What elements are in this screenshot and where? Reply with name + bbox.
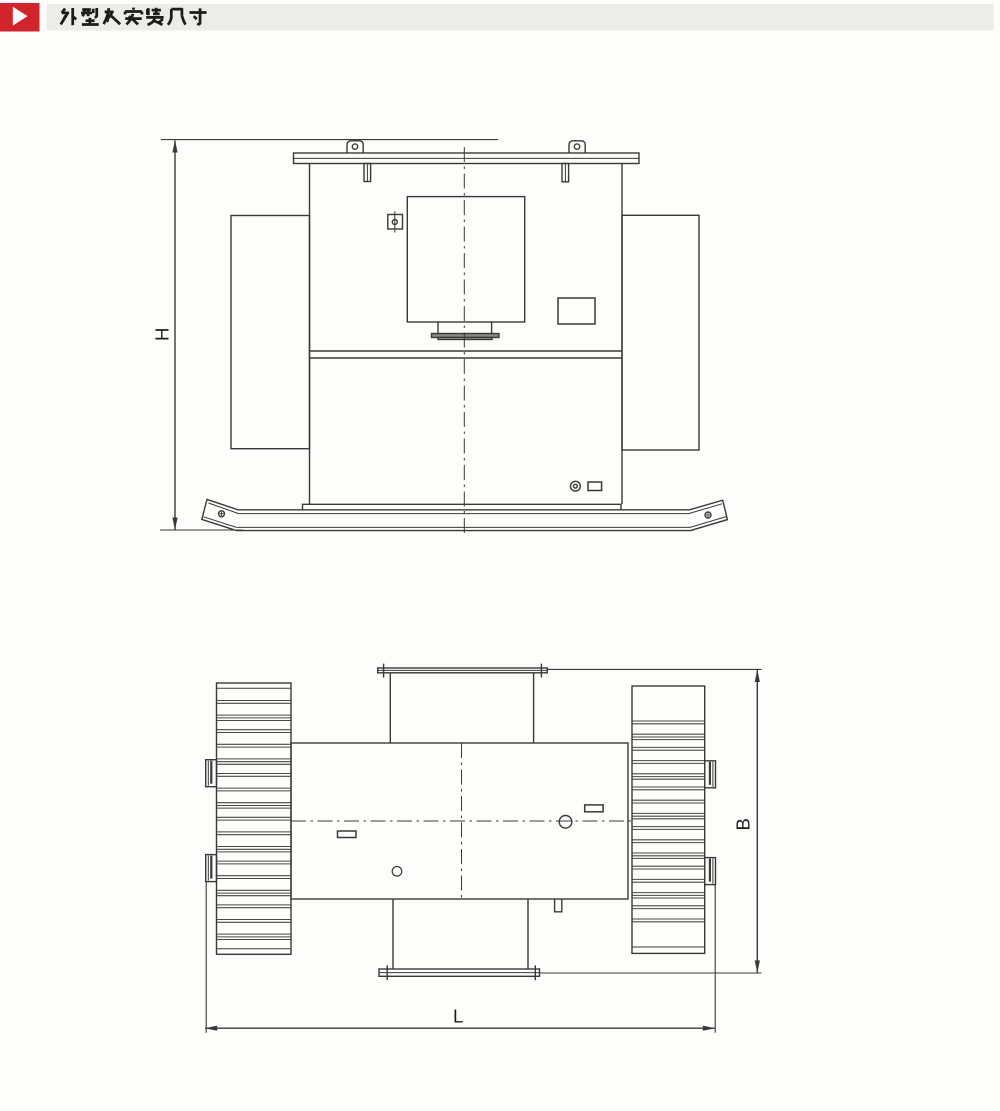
svg-text:B: B bbox=[733, 818, 754, 830]
svg-text:H: H bbox=[152, 328, 173, 341]
svg-text:L: L bbox=[453, 1006, 463, 1027]
